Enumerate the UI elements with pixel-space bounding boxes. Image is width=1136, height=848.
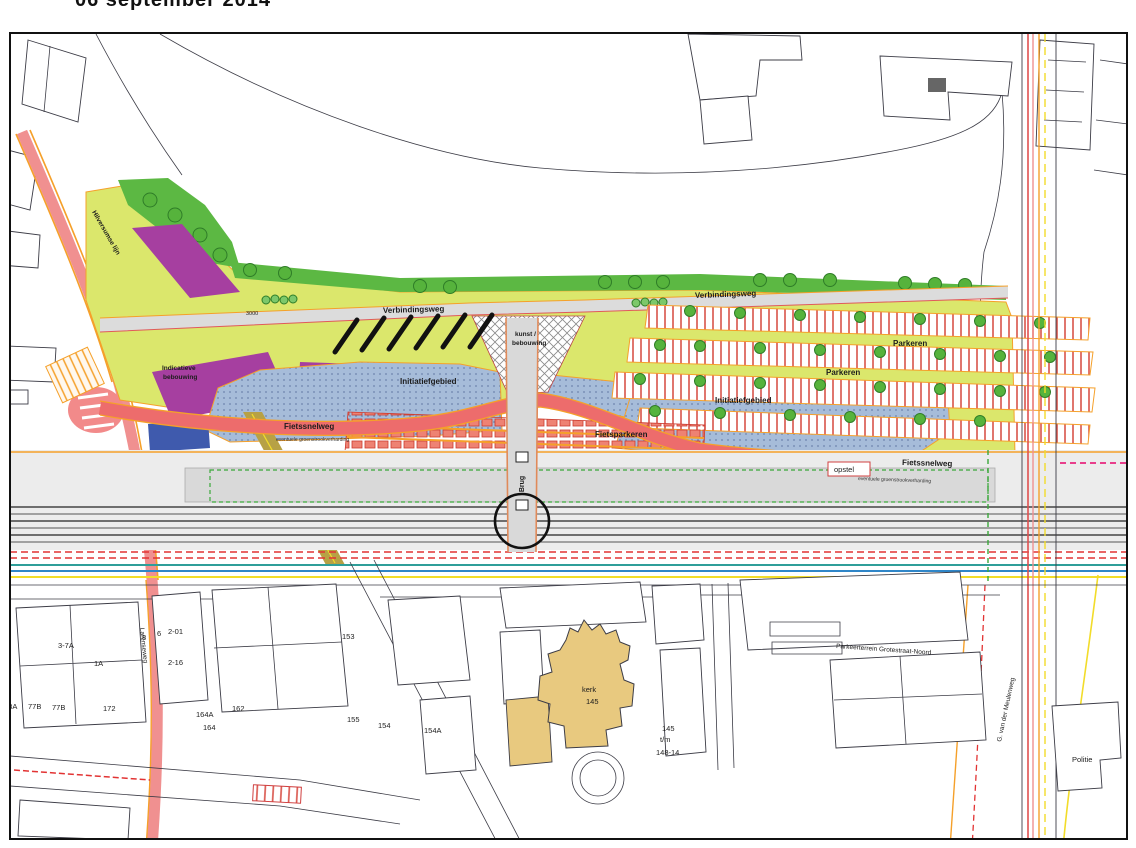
number: 154 <box>378 721 391 730</box>
number: 6 <box>157 629 161 638</box>
site-plan-map: Verbindingsweg Verbindingsweg 3000 kunst… <box>0 0 1136 848</box>
label-fietsparkeren: Fietsparkeren <box>595 430 648 439</box>
label-fietssnelweg-left: Fietssnelweg <box>284 422 334 431</box>
label-kunst-line2: bebouwing <box>512 340 546 347</box>
number: 145 <box>662 724 675 733</box>
number: 77B <box>52 703 65 712</box>
label-fietssnelweg-right: Fietssnelweg <box>902 458 953 468</box>
number: 172 <box>103 704 116 713</box>
label-kerk-nr: 145 <box>586 697 599 706</box>
rail-corridor <box>10 450 1127 585</box>
label-kunst-line1: kunst / <box>515 331 536 338</box>
number: 162 <box>232 704 245 713</box>
number: 2-01 <box>168 627 183 636</box>
number: 154A <box>424 726 442 735</box>
number: 3-7A <box>58 641 74 650</box>
platform <box>185 468 995 502</box>
label-verbindingsweg-left: Verbindingsweg <box>383 304 445 315</box>
number: 153 <box>342 632 355 641</box>
label-parkeren-1: Parkeren <box>893 339 927 348</box>
label-opstel: opstel <box>834 465 854 474</box>
label-dim-3000: 3000 <box>246 311 258 317</box>
label-parkeren-2: Parkeren <box>826 368 860 377</box>
number: 8 <box>142 633 146 642</box>
red-hatch-block <box>253 785 302 803</box>
label-kerk: kerk <box>582 685 596 694</box>
label-politie: Politie <box>1072 755 1092 764</box>
number: 164 <box>203 723 216 732</box>
number: 77B <box>28 702 41 711</box>
number: 164A <box>196 710 214 719</box>
label-indicatieve-line2: bebouwing <box>163 374 197 381</box>
number: 1A <box>94 659 103 668</box>
label-initiatiefgebied-left: Initiatiefgebied <box>400 377 457 386</box>
label-indicatieve-line1: Indicatieve <box>162 365 196 372</box>
number: 2-16 <box>168 658 183 667</box>
label-subtext-left: eventuele groenstrookverharding <box>276 437 349 443</box>
label-initiatiefgebied-right: Initiatiefgebied <box>715 396 772 405</box>
label-brug: Brug <box>519 476 526 492</box>
number: t/m <box>660 735 670 744</box>
scanned-plan-page: 06 september 2014 <box>0 0 1136 848</box>
number: 148-14 <box>656 748 679 757</box>
number: 155 <box>347 715 360 724</box>
